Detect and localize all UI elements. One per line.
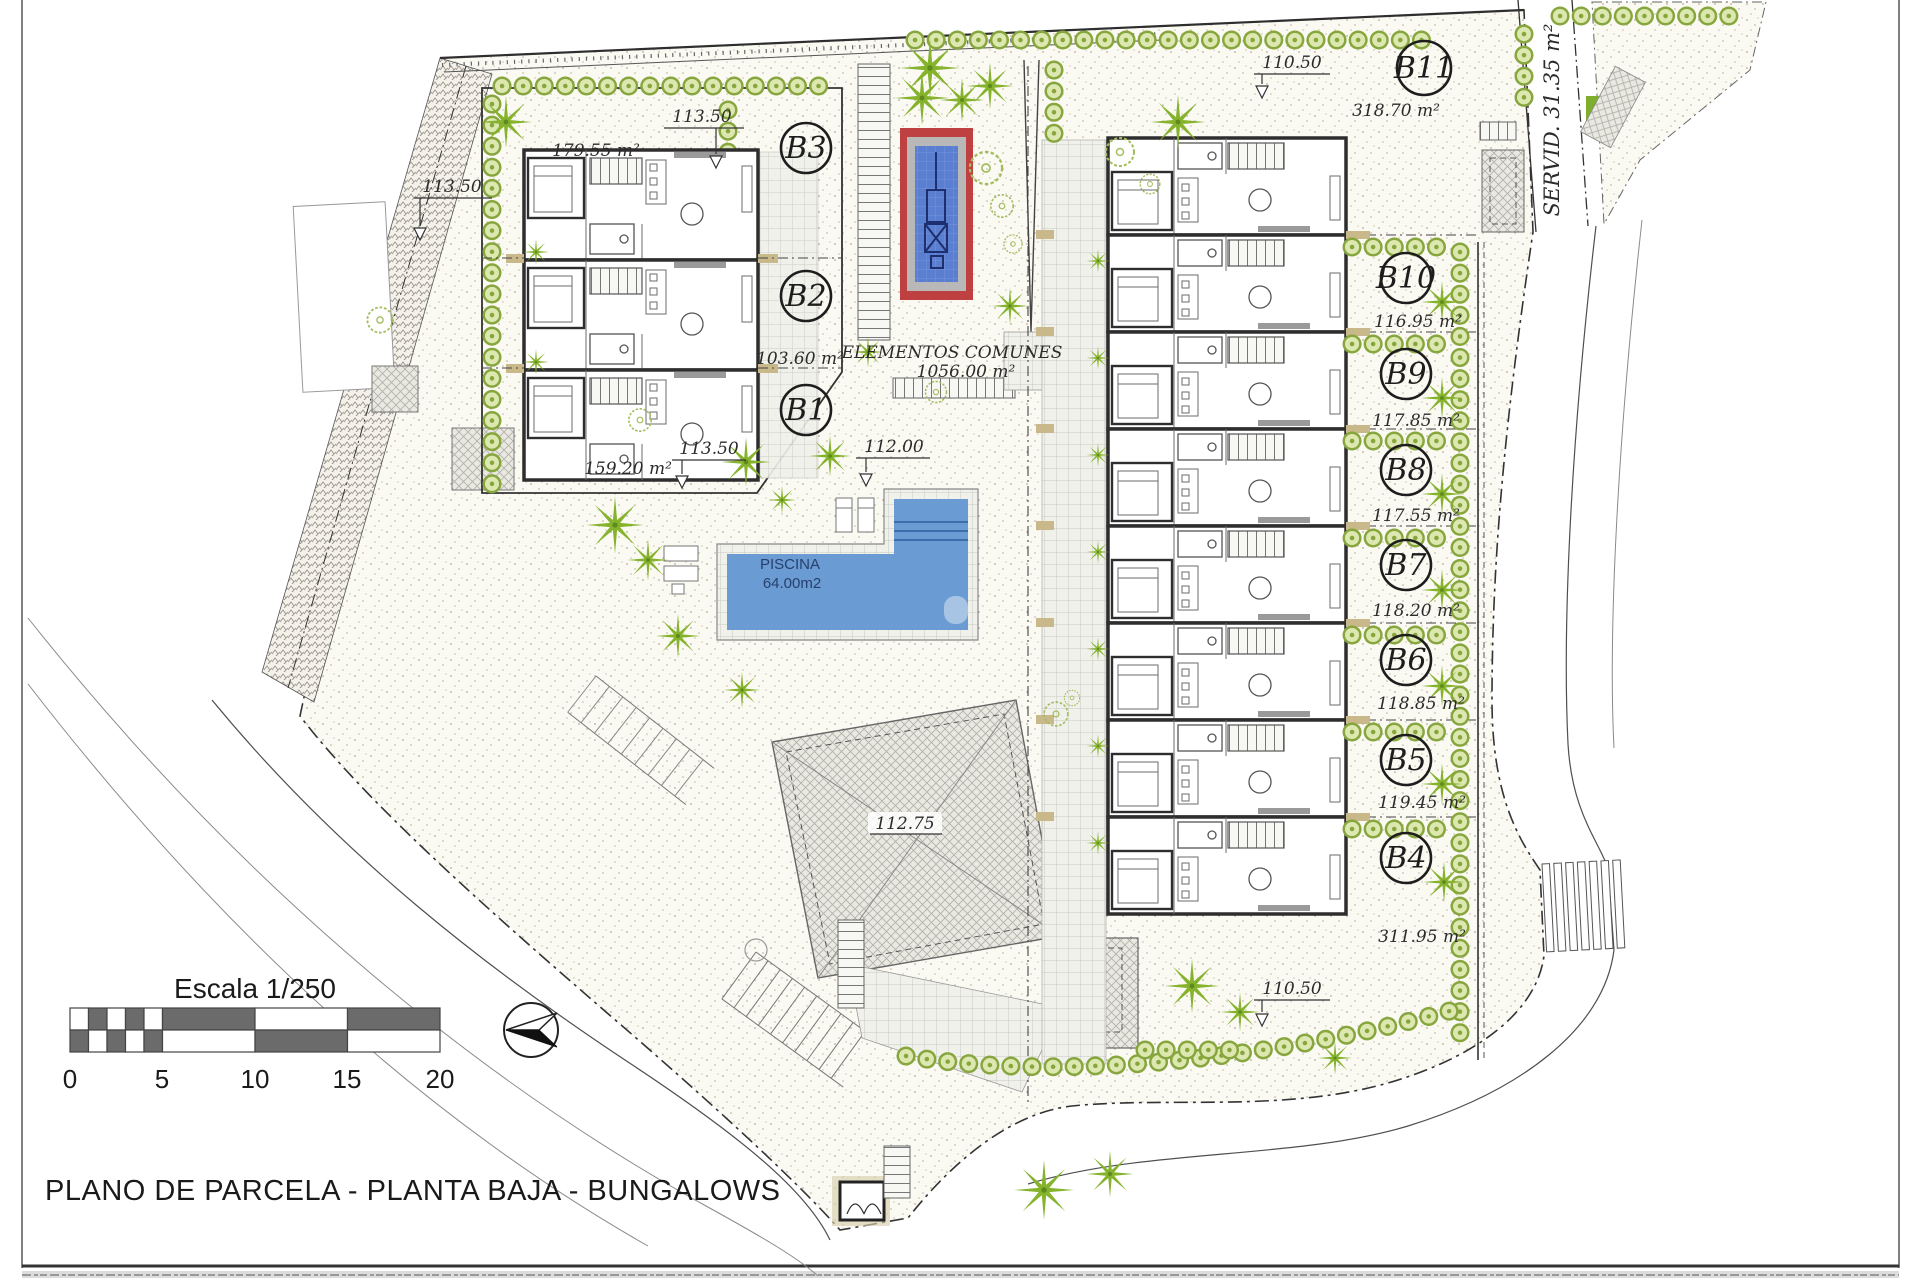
area-b3: 179.55 m²	[552, 141, 640, 161]
plot-label-b3: B3	[784, 131, 826, 166]
svg-text:110.50: 110.50	[1262, 979, 1322, 999]
area-b1: 159.20 m²	[584, 459, 672, 479]
plot-label-b5: B5	[1384, 743, 1426, 778]
area-b7: 118.20 m²	[1372, 601, 1460, 621]
area-b2: 103.60 m²	[756, 349, 844, 369]
pool-label: PISCINA	[760, 556, 820, 573]
area-b9: 117.85 m²	[1372, 411, 1460, 431]
plot-label-b9: B9	[1384, 357, 1426, 392]
plot-label-b7: B7	[1384, 548, 1427, 583]
svg-text:112.00: 112.00	[864, 437, 924, 457]
plan-sheet: B3 B2 B1 179.55 m² 103.60 m² 159.20 m² B…	[0, 0, 1920, 1280]
area-b10: 116.95 m²	[1374, 312, 1462, 332]
servitude-label: SERVID. 31.35 m²	[1540, 24, 1564, 217]
common-area-label: ELEMENTOS COMUNES	[841, 343, 1063, 363]
pool-area: 64.00m2	[763, 575, 821, 592]
crosswalk	[1542, 860, 1625, 952]
plot-label-b4: B4	[1384, 841, 1426, 876]
area-b5: 119.45 m²	[1378, 793, 1466, 813]
area-b8: 117.55 m²	[1372, 506, 1460, 526]
pergola-walkway	[858, 64, 890, 340]
common-area-value: 1056.00 m²	[917, 362, 1016, 382]
svg-text:110.50: 110.50	[1262, 53, 1322, 73]
plot-label-b2: B2	[784, 279, 826, 314]
area-b4: 311.95 m²	[1378, 927, 1466, 947]
pergola	[772, 700, 1060, 978]
plot-label-b1: B1	[784, 393, 826, 428]
scale-tick-15: 15	[333, 1064, 362, 1094]
plot-label-b11: B11	[1393, 51, 1454, 86]
svg-text:112.75: 112.75	[875, 814, 934, 834]
north-arrow-icon	[504, 1003, 558, 1057]
area-b11: 318.70 m²	[1352, 101, 1440, 121]
svg-text:113.50: 113.50	[679, 439, 739, 459]
plot-label-b6: B6	[1384, 643, 1426, 678]
svg-text:113.50: 113.50	[672, 107, 732, 127]
dim-plaza: 112.75	[868, 812, 942, 834]
plot-label-b10: B10	[1375, 261, 1436, 296]
scale-bar: Escala 1/250 0 5 10 15 20	[63, 973, 455, 1094]
sheet-title: PLANO DE PARCELA - PLANTA BAJA - BUNGALO…	[45, 1175, 780, 1207]
playground-court	[900, 128, 973, 300]
svg-text:113.50: 113.50	[422, 177, 482, 197]
scale-tick-10: 10	[241, 1064, 270, 1094]
utility-structure	[832, 1176, 890, 1226]
bungalow-unit-b2	[524, 260, 758, 370]
scale-tick-20: 20	[426, 1064, 455, 1094]
scale-label: Escala 1/250	[174, 973, 336, 1004]
scale-tick-5: 5	[155, 1064, 169, 1094]
bungalow-unit-b3	[524, 150, 758, 260]
plot-label-b8: B8	[1384, 453, 1426, 488]
area-b6: 118.85 m²	[1377, 694, 1465, 714]
scale-tick-0: 0	[63, 1064, 77, 1094]
